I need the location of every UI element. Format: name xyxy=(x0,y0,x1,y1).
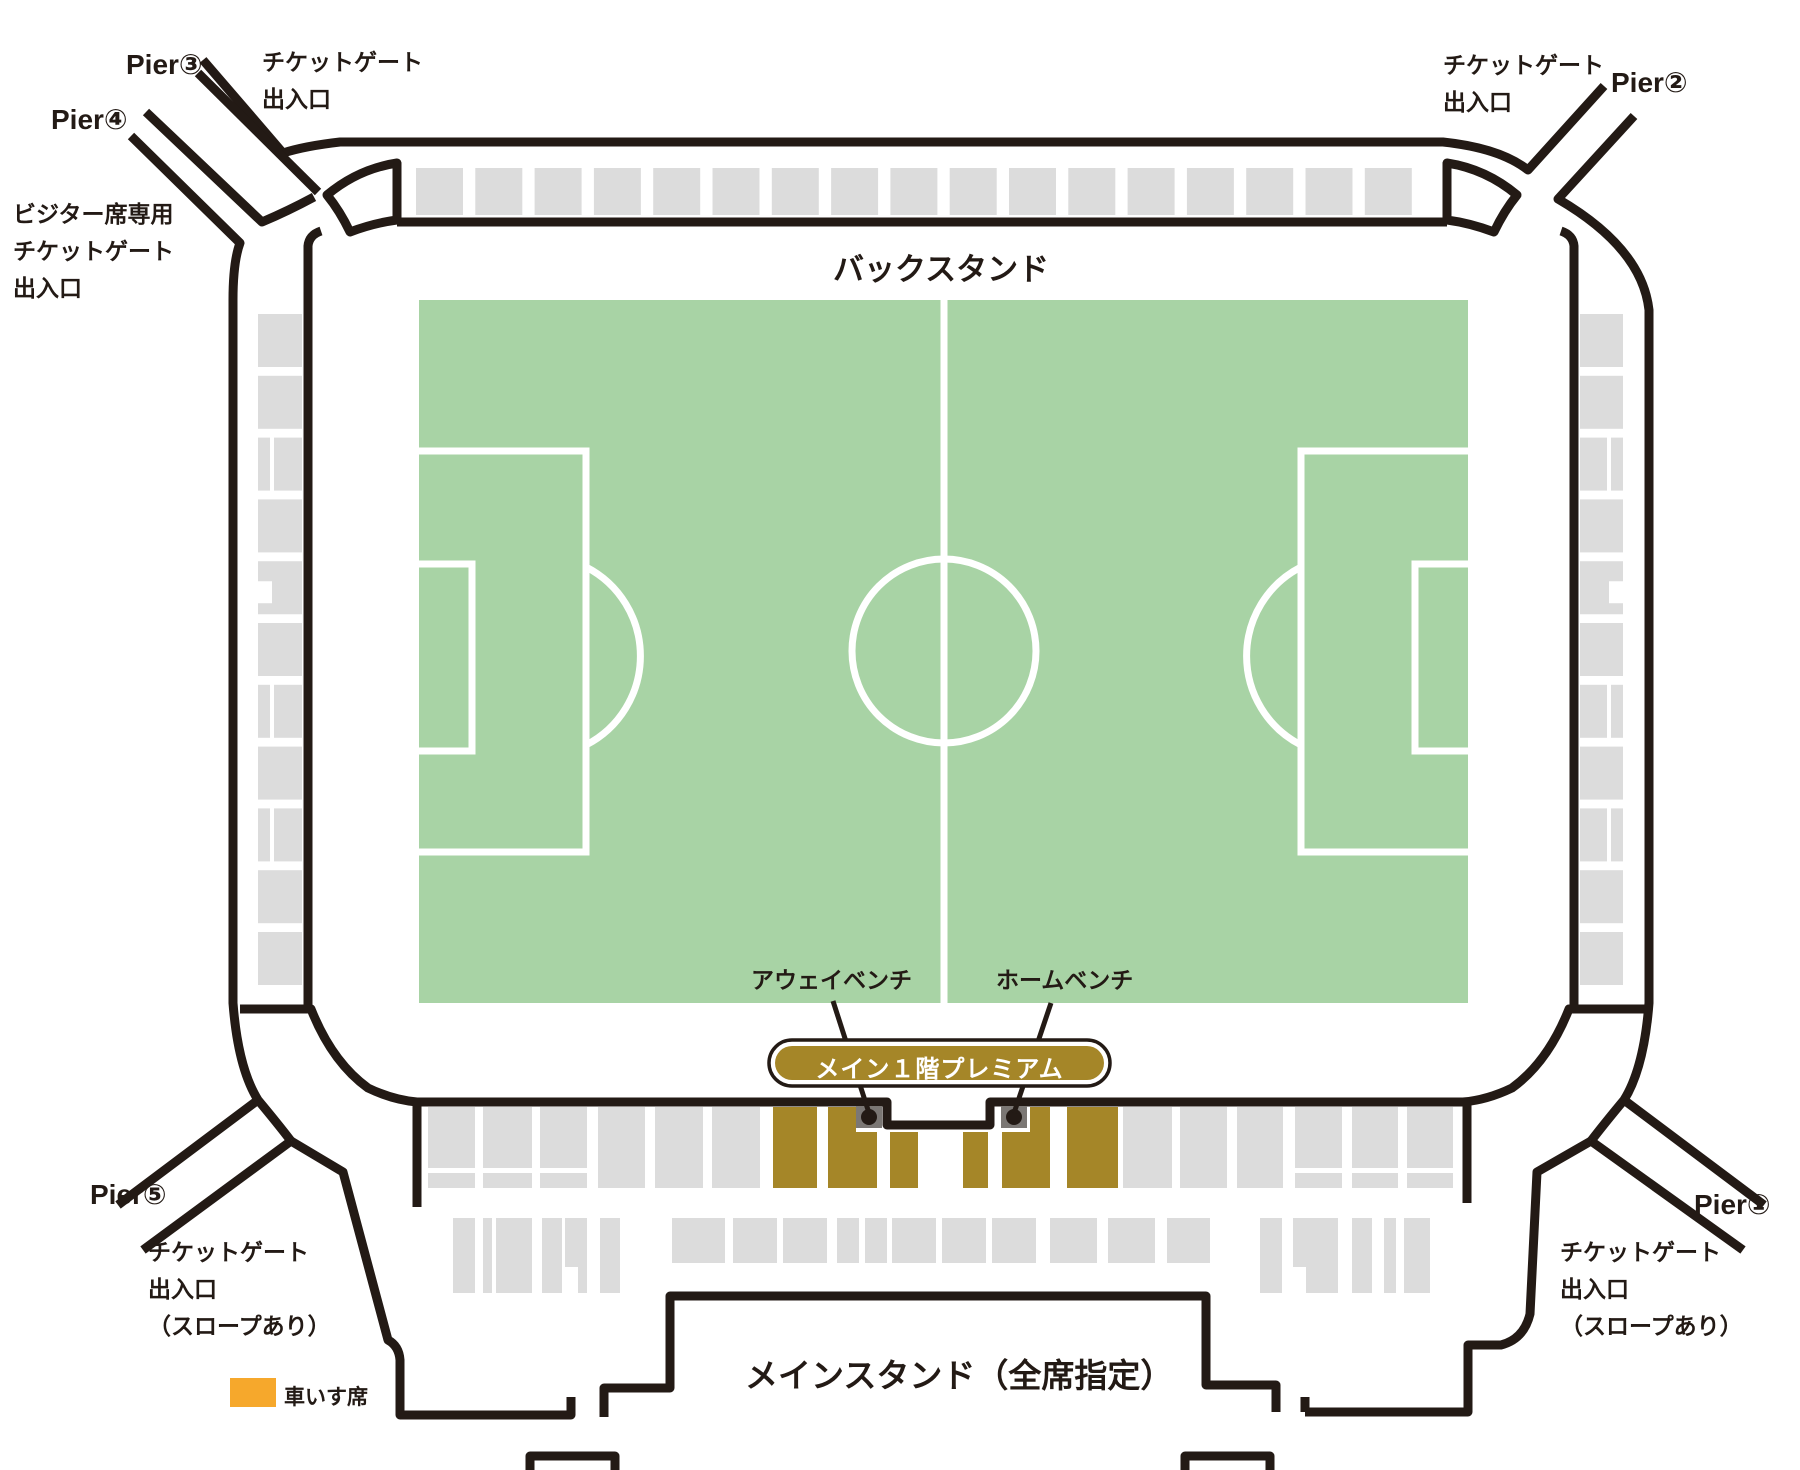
seat-block xyxy=(258,932,302,985)
seat-block xyxy=(1167,1218,1210,1263)
seat-block xyxy=(1002,1132,1030,1188)
seat-block xyxy=(453,1218,475,1293)
seat-block xyxy=(856,1132,877,1188)
seat-block xyxy=(1009,168,1056,215)
gate-northeast-line1: チケットゲート xyxy=(1443,47,1604,84)
gate-northeast-label: チケットゲート 出入口 xyxy=(1443,47,1604,121)
main-stand-step-left xyxy=(530,1456,615,1470)
premium-badge-label: メイン１階プレミアム xyxy=(772,1049,1107,1084)
seat-block xyxy=(733,1218,777,1263)
seat-block xyxy=(1404,1218,1430,1293)
seat-block xyxy=(1295,1107,1342,1168)
seat-block xyxy=(1068,168,1115,215)
seat-block xyxy=(542,1218,562,1293)
seat-block xyxy=(1384,1218,1396,1293)
seat-block xyxy=(1580,561,1623,614)
seat-block xyxy=(1187,168,1234,215)
seat-block xyxy=(540,1107,587,1168)
wheelchair-legend-label: 車いす席 xyxy=(284,1381,368,1411)
inner-corner-southeast xyxy=(1463,1009,1646,1102)
seat-block xyxy=(258,870,302,923)
seat-block xyxy=(890,168,937,215)
seat-block xyxy=(828,1107,856,1188)
seat-block xyxy=(837,1218,859,1263)
seat-block xyxy=(950,168,997,215)
seat-block xyxy=(892,1218,936,1263)
wedge-northeast xyxy=(1447,163,1517,232)
seat-block xyxy=(831,168,878,215)
seat-block xyxy=(258,747,302,800)
seat-block xyxy=(258,808,270,861)
back-stand-title: バックスタンド xyxy=(833,244,1049,289)
seat-block xyxy=(475,168,522,215)
seat-block xyxy=(773,1107,817,1188)
seat-block xyxy=(1128,168,1175,215)
seat-block xyxy=(274,685,302,738)
seat-block xyxy=(258,376,302,429)
seat-block xyxy=(1611,438,1623,491)
pier5-label: Pier⑤ xyxy=(90,1178,167,1211)
pitch xyxy=(419,300,1468,1003)
seat-block xyxy=(258,685,270,738)
seat-block xyxy=(1352,1218,1372,1293)
seat-block xyxy=(1295,1173,1342,1188)
seat-block xyxy=(483,1173,532,1188)
gate-southwest-line3: （スロープあり） xyxy=(148,1308,331,1345)
seat-block xyxy=(1580,499,1623,552)
visitor-gate-line2: チケットゲート xyxy=(13,233,174,270)
away-bench-label: アウェイベンチ xyxy=(751,961,912,995)
seat-block xyxy=(1407,1107,1453,1168)
gate-southwest-line2: 出入口 xyxy=(148,1271,331,1308)
seat-block xyxy=(483,1218,492,1293)
seat-block xyxy=(258,561,302,614)
main-stand-title: メインスタンド（全席指定） xyxy=(745,1349,1173,1397)
stadium-seating-map: Pier③ チケットゲート 出入口 Pier④ ビジター席専用 チケットゲート … xyxy=(0,0,1800,1470)
seat-block xyxy=(865,1218,887,1263)
visitor-gate-line3: 出入口 xyxy=(13,270,174,307)
seat-block xyxy=(1067,1107,1118,1188)
wheelchair-legend-swatch xyxy=(230,1378,276,1407)
inner-corner-southwest xyxy=(240,1009,417,1102)
seat-block xyxy=(428,1173,475,1188)
seat-block xyxy=(1580,376,1623,429)
seat-block xyxy=(1306,168,1353,215)
seat-block xyxy=(1580,870,1623,923)
seat-block xyxy=(1352,1173,1398,1188)
seat-block xyxy=(1246,168,1293,215)
seat-block xyxy=(274,808,302,861)
seat-block xyxy=(600,1218,620,1293)
pier3-label: Pier③ xyxy=(126,48,203,81)
seat-block xyxy=(672,1218,725,1263)
seat-block xyxy=(274,438,302,491)
seat-block xyxy=(1580,747,1623,800)
seat-block xyxy=(1260,1218,1282,1293)
home-bench-label: ホームベンチ xyxy=(996,961,1133,995)
seat-block xyxy=(653,168,700,215)
seat-block xyxy=(1580,932,1623,985)
seat-block xyxy=(483,1107,532,1168)
seat-block xyxy=(1580,438,1607,491)
inner-left-line xyxy=(308,231,321,1009)
seat-block xyxy=(783,1218,827,1263)
seat-block xyxy=(1108,1218,1155,1263)
gate-southeast-line3: （スロープあり） xyxy=(1560,1308,1743,1345)
seat-block xyxy=(1352,1107,1398,1168)
inner-right-line xyxy=(1561,231,1574,1009)
seat-block xyxy=(258,623,302,676)
main-stand-step-right xyxy=(1185,1456,1270,1470)
gate-northeast-line2: 出入口 xyxy=(1443,84,1604,121)
seat-block xyxy=(1580,623,1623,676)
gate-northwest-label: チケットゲート 出入口 xyxy=(262,44,423,118)
seat-block xyxy=(1237,1107,1283,1188)
seat-block xyxy=(1123,1107,1172,1188)
seat-block xyxy=(535,168,582,215)
seat-block xyxy=(1030,1107,1050,1188)
gate-northwest-line2: 出入口 xyxy=(262,81,423,118)
seat-block xyxy=(1293,1218,1338,1293)
pier4-label: Pier④ xyxy=(51,103,128,136)
pier2-label: Pier② xyxy=(1611,66,1688,99)
visitor-gate-line1: ビジター席専用 xyxy=(13,196,174,233)
seat-block xyxy=(598,1107,645,1188)
seat-block xyxy=(655,1107,703,1188)
seat-block xyxy=(565,1218,587,1293)
seat-block xyxy=(712,1107,760,1188)
seat-block xyxy=(594,168,641,215)
gate-southeast-line2: 出入口 xyxy=(1560,1271,1743,1308)
seat-block xyxy=(1611,808,1623,861)
visitor-gate-label: ビジター席専用 チケットゲート 出入口 xyxy=(13,196,174,307)
seat-block xyxy=(992,1218,1036,1263)
seat-block xyxy=(772,168,819,215)
seat-block xyxy=(1050,1218,1097,1263)
seat-block xyxy=(428,1107,475,1168)
seat-block xyxy=(540,1173,587,1188)
seat-block xyxy=(713,168,760,215)
seat-block xyxy=(963,1132,988,1188)
seat-block xyxy=(496,1218,532,1293)
seat-block xyxy=(258,314,302,367)
gate-southwest-label: チケットゲート 出入口 （スロープあり） xyxy=(148,1234,331,1345)
seat-block xyxy=(890,1132,918,1188)
gate-southeast-line1: チケットゲート xyxy=(1560,1234,1743,1271)
gate-southeast-label: チケットゲート 出入口 （スロープあり） xyxy=(1560,1234,1743,1345)
seat-block xyxy=(942,1218,986,1263)
seat-block xyxy=(1580,314,1623,367)
seat-block xyxy=(416,168,463,215)
seat-block xyxy=(1611,685,1623,738)
seat-block xyxy=(1580,808,1607,861)
gate-southwest-line1: チケットゲート xyxy=(148,1234,331,1271)
seat-block xyxy=(1407,1173,1453,1188)
seat-block xyxy=(1580,685,1607,738)
seat-block xyxy=(258,438,270,491)
seat-block xyxy=(258,499,302,552)
wedge-northwest xyxy=(327,163,397,232)
seat-block xyxy=(1365,168,1412,215)
seat-block xyxy=(1180,1107,1227,1188)
gate-northwest-line1: チケットゲート xyxy=(262,44,423,81)
pier1-label: Pier① xyxy=(1694,1188,1771,1221)
